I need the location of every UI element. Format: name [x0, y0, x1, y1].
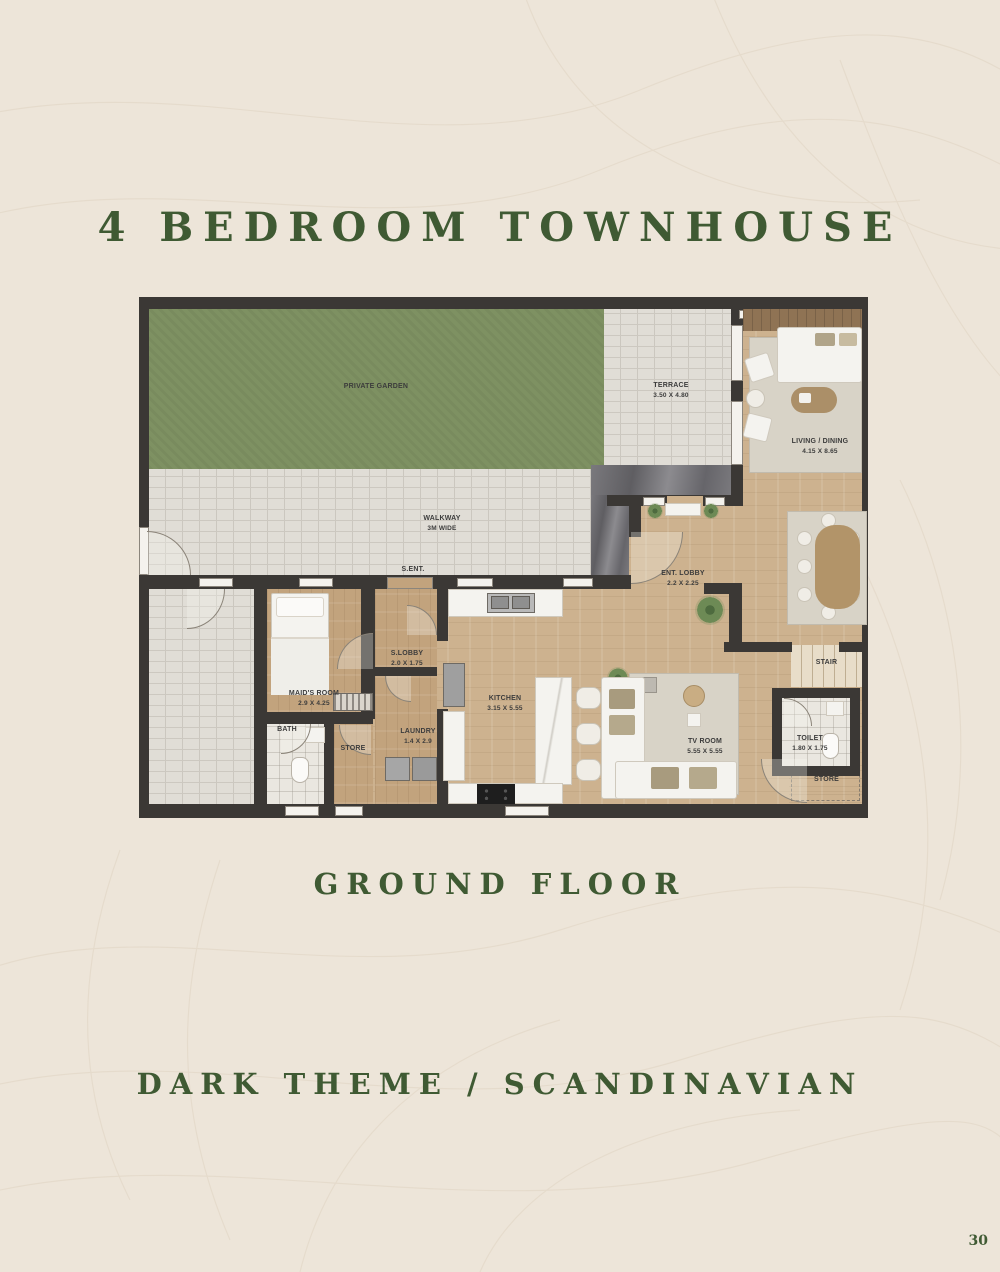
brochure-page: 4 BEDROOM TOWNHOUSE GROUND FLOOR DARK TH… [0, 0, 1000, 1272]
bar-stool [576, 687, 601, 709]
wall-segment [267, 712, 373, 724]
window [731, 401, 743, 465]
wall-segment [629, 495, 641, 537]
coffee-table-tray [799, 393, 811, 403]
kitchen-sink-basin [512, 596, 530, 609]
bar-stool [576, 723, 601, 745]
sofa-cushion [651, 767, 679, 789]
sofa-cushion [689, 767, 717, 789]
style-caption: DARK THEME / SCANDINAVIAN [0, 1067, 1000, 1101]
fridge [443, 663, 465, 707]
floor-caption: GROUND FLOOR [0, 867, 1000, 901]
floor-plan: PRIVATE GARDEN TERRACE 3.50 X 4.80 WALKW… [139, 297, 868, 818]
lobby-marble-walk [591, 495, 629, 577]
room-label-s-ent: S.ENT. [389, 565, 437, 575]
sofa-cushion [839, 333, 857, 346]
room-label-kitchen: KITCHEN 3.15 X 5.55 [469, 694, 541, 714]
wall-segment [850, 688, 860, 776]
wall-segment [724, 642, 792, 652]
walkway-area [149, 469, 604, 575]
room-label-store2: STORE [791, 775, 862, 785]
wall-segment [139, 297, 868, 309]
doormat [665, 503, 701, 516]
bed-blanket [271, 637, 329, 695]
side-table [687, 713, 701, 727]
room-label-ent-lobby: ENT. LOBBY 2.2 X 2.25 [647, 569, 719, 589]
bar-stool [576, 759, 601, 781]
room-label-bath: BATH [267, 725, 307, 735]
room-label-terrace: TERRACE 3.50 X 4.80 [624, 381, 718, 401]
planter-plant [703, 503, 719, 519]
toilet-wc [291, 757, 309, 783]
wall-segment [254, 589, 267, 804]
wall-segment [324, 724, 334, 804]
room-label-living-dining: LIVING / DINING 4.15 X 8.65 [773, 437, 867, 457]
toilet-sink [826, 701, 844, 716]
sofa-cushion [815, 333, 835, 346]
dining-chair [797, 587, 812, 602]
terrace-marble-edge [591, 465, 731, 495]
room-label-laundry: LAUNDRY 1.4 X 2.9 [383, 727, 453, 747]
wall-segment [729, 591, 742, 645]
window [199, 578, 233, 587]
wall-segment [772, 688, 860, 698]
window [505, 806, 549, 816]
wall-segment [839, 642, 868, 652]
room-label-maids-room: MAID'S ROOM 2.9 X 4.25 [267, 689, 361, 709]
window [457, 578, 493, 587]
window [299, 578, 333, 587]
service-entrance-threshold [387, 577, 433, 589]
dining-table [815, 525, 860, 609]
wall-segment [437, 589, 448, 641]
washing-machine [385, 757, 410, 781]
window [563, 578, 593, 587]
window [335, 806, 363, 816]
washing-machine [412, 757, 437, 781]
dining-chair [797, 531, 812, 546]
room-label-walkway: WALKWAY 3M WIDE [395, 514, 489, 534]
window [731, 325, 743, 381]
room-label-garden: PRIVATE GARDEN [329, 382, 423, 392]
window [285, 806, 319, 816]
wall-segment [139, 804, 868, 818]
sofa-cushion [609, 689, 635, 709]
planter-plant [647, 503, 663, 519]
dining-chair [797, 559, 812, 574]
side-table [746, 389, 765, 408]
bed-pillow [276, 597, 324, 617]
coffee-table [791, 387, 837, 413]
page-title: 4 BEDROOM TOWNHOUSE [0, 204, 1000, 251]
page-number: 30 [969, 1233, 988, 1249]
room-label-s-lobby: S.LOBBY 2.0 X 1.75 [372, 649, 442, 669]
sofa-cushion [609, 715, 635, 735]
room-label-toilet: TOILET 1.80 X 1.75 [772, 734, 848, 754]
room-label-stair: STAIR [791, 658, 862, 668]
room-label-tv-room: TV ROOM 5.55 X 5.55 [669, 737, 741, 757]
round-coffee-table [683, 685, 705, 707]
stove [477, 784, 515, 804]
room-label-store1: STORE [332, 744, 374, 754]
kitchen-sink-basin [491, 596, 509, 609]
palm-plant [695, 595, 725, 625]
